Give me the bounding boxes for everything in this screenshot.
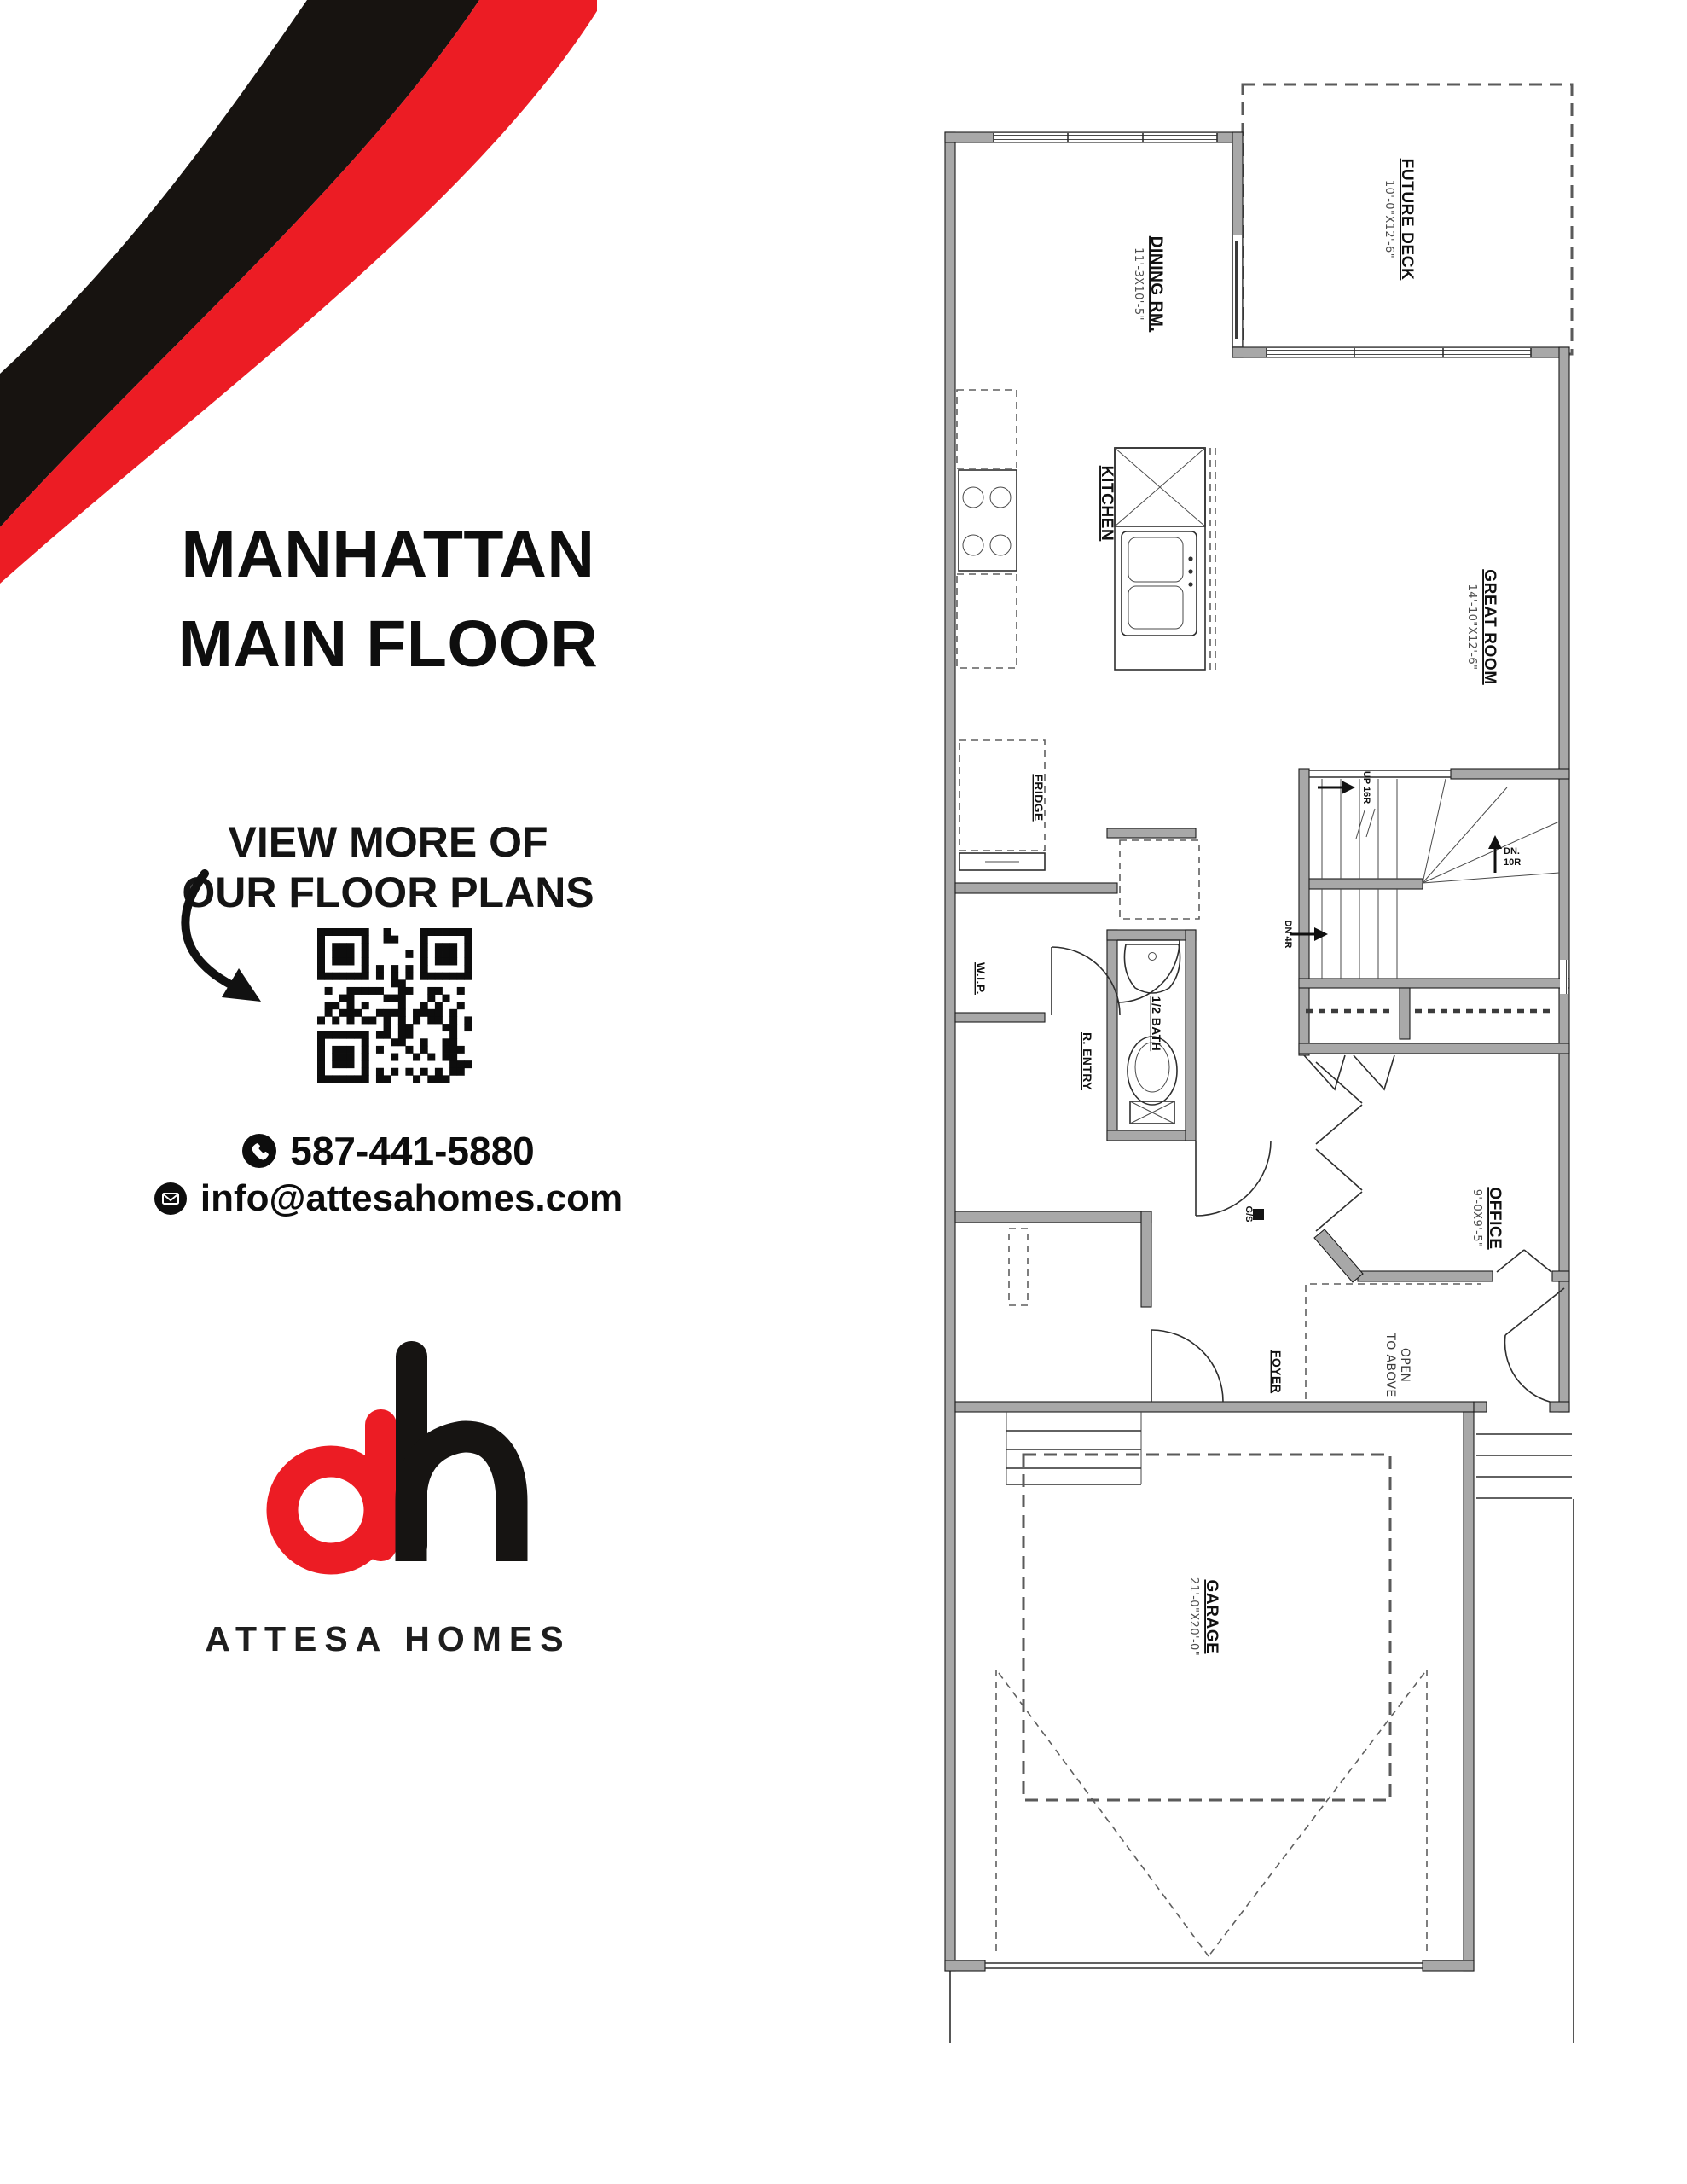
corner-stripes-decoration	[0, 0, 597, 597]
pantry-cabinet-outline	[1120, 840, 1199, 919]
garage-details	[985, 1455, 1427, 1968]
title-line-2: MAIN FLOOR	[102, 600, 674, 689]
room-label-future-deck: FUTURE DECK 10'-0"X12'-6"	[1383, 159, 1416, 281]
svg-text:R. ENTRY: R. ENTRY	[1081, 1032, 1094, 1090]
svg-text:GARAGE: GARAGE	[1203, 1580, 1220, 1654]
email-address: info@attesahomes.com	[200, 1177, 623, 1220]
svg-text:FRIDGE: FRIDGE	[1032, 774, 1046, 821]
room-label-fridge: FRIDGE	[1032, 774, 1046, 821]
logo-letter-a-stem	[365, 1409, 397, 1561]
kitchen-fixtures	[957, 390, 1215, 870]
room-label-office: OFFICE 9'-0X9'-5"	[1470, 1187, 1504, 1249]
svg-text:FOYER: FOYER	[1270, 1350, 1284, 1393]
brand-name: ATTESA HOMES	[94, 1619, 682, 1659]
room-label-great-room: GREAT ROOM 14'-10"X12'-6"	[1465, 569, 1499, 684]
phone-icon	[241, 1133, 277, 1169]
cta-line-1: VIEW MORE OF	[111, 817, 665, 868]
room-label-dining: DINING RM. 11'-3X10'-5"	[1132, 236, 1165, 333]
windows	[994, 133, 1568, 994]
svg-text:KITCHEN: KITCHEN	[1098, 466, 1116, 542]
logo-letter-h-arch	[411, 1437, 512, 1561]
phone-row: 587-441-5880	[111, 1128, 665, 1174]
svg-text:DINING RM.: DINING RM.	[1147, 236, 1165, 333]
stairs-dn4-label: DN 4R	[1283, 920, 1293, 948]
entry-steps	[1006, 1412, 1141, 1484]
gs-symbol: G/S	[1244, 1206, 1264, 1223]
svg-text:9'-0X9'-5": 9'-0X9'-5"	[1470, 1189, 1483, 1248]
room-label-foyer: FOYER	[1270, 1350, 1284, 1393]
room-label-kitchen: KITCHEN	[1098, 466, 1116, 542]
floor-plan: UP 16R DN 4R DN. 10R	[934, 81, 1582, 2043]
svg-text:10'-0"X12'-6": 10'-0"X12'-6"	[1383, 180, 1395, 258]
gs-label: G/S	[1244, 1206, 1254, 1223]
svg-text:GREAT ROOM: GREAT ROOM	[1481, 569, 1499, 684]
svg-text:OFFICE: OFFICE	[1486, 1187, 1504, 1249]
room-label-rentry: R. ENTRY	[1081, 1032, 1094, 1090]
qr-code	[317, 928, 472, 1083]
page-title: MANHATTAN MAIN FLOOR	[102, 510, 674, 688]
email-row: info@attesahomes.com	[111, 1177, 665, 1220]
title-line-1: MANHATTAN	[102, 510, 674, 600]
logo-letter-a-bowl	[282, 1461, 380, 1559]
brand-logo	[254, 1331, 548, 1587]
mud-lockers-outline	[1009, 1228, 1028, 1305]
patio-door	[1235, 241, 1238, 339]
svg-text:11'-3X10'-5": 11'-3X10'-5"	[1132, 247, 1145, 321]
phone-number: 587-441-5880	[290, 1128, 534, 1174]
svg-text:14'-10"X12'-6": 14'-10"X12'-6"	[1465, 584, 1478, 671]
envelope-icon	[154, 1182, 188, 1216]
driveway-outline	[950, 1499, 1574, 2043]
room-label-open-to-above: OPEN TO ABOVE	[1383, 1332, 1412, 1397]
office-doors	[1316, 1062, 1551, 1272]
stairs-up-label: UP 16R	[1361, 771, 1371, 804]
flyer-page: MANHATTAN MAIN FLOOR VIEW MORE OF OUR FL…	[0, 0, 1687, 2184]
svg-text:TO ABOVE: TO ABOVE	[1383, 1332, 1397, 1397]
stairs-dn10-label-1: DN.	[1504, 846, 1520, 857]
room-label-garage: GARAGE 21'-0"X20'-0"	[1187, 1577, 1220, 1656]
room-label-halfbath: 1/2 BATH	[1150, 996, 1163, 1051]
curved-arrow-icon	[160, 868, 339, 1022]
stairs: UP 16R DN 4R DN. 10R	[1283, 770, 1559, 979]
svg-text:FUTURE DECK: FUTURE DECK	[1398, 159, 1416, 281]
black-stripe	[0, 0, 479, 527]
svg-text:OPEN: OPEN	[1398, 1348, 1412, 1382]
room-label-wip: W.I.P.	[974, 962, 988, 995]
porch-steps	[1476, 1434, 1572, 1498]
walls	[945, 132, 1569, 1971]
stairs-dn10-label-2: 10R	[1504, 857, 1521, 868]
svg-text:1/2 BATH: 1/2 BATH	[1150, 996, 1163, 1051]
svg-text:W.I.P.: W.I.P.	[974, 962, 988, 995]
svg-text:21'-0"X20'-0": 21'-0"X20'-0"	[1187, 1577, 1200, 1656]
